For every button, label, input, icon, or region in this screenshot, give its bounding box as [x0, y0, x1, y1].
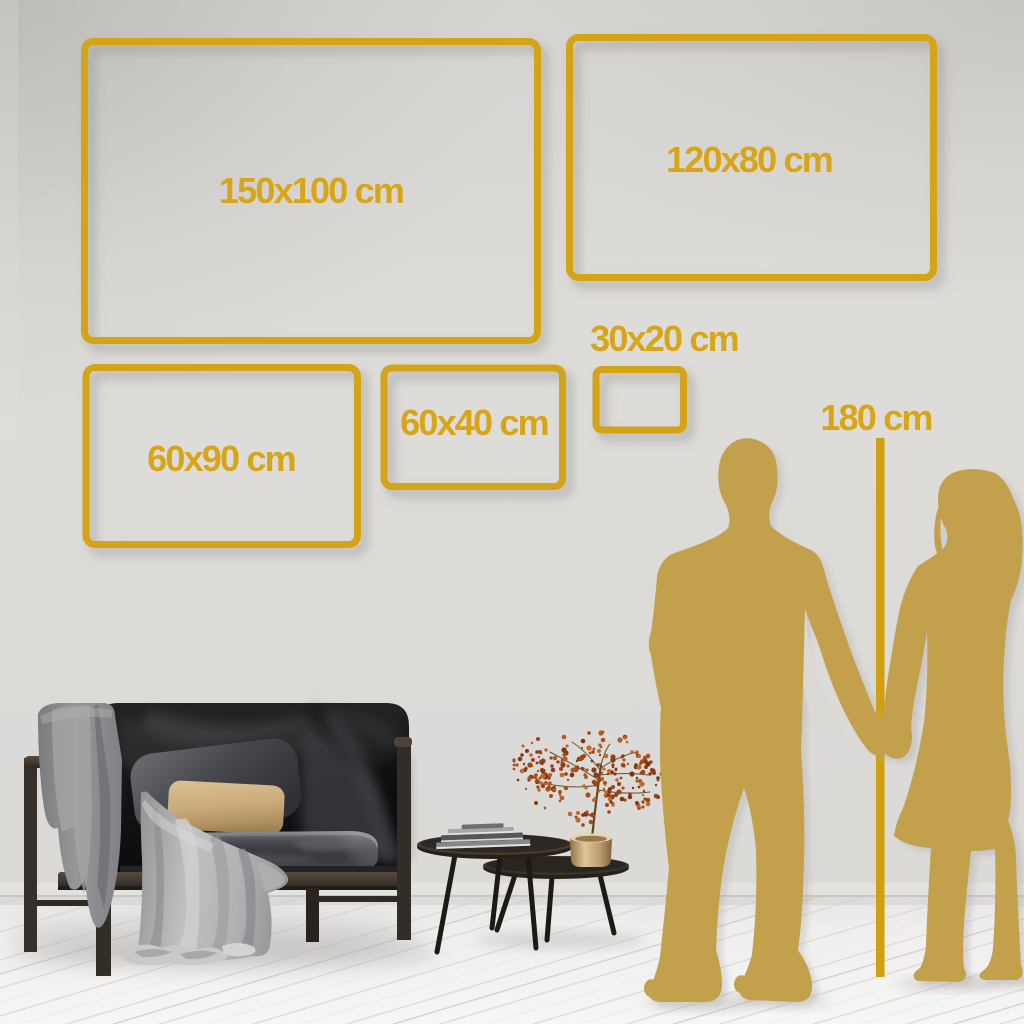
svg-text:60x90 cm: 60x90 cm: [147, 438, 295, 479]
svg-text:30x20 cm: 30x20 cm: [590, 318, 738, 359]
svg-text:150x100 cm: 150x100 cm: [219, 170, 403, 211]
svg-text:120x80 cm: 120x80 cm: [666, 139, 832, 180]
svg-text:60x40 cm: 60x40 cm: [400, 402, 548, 443]
svg-text:180 cm: 180 cm: [820, 397, 931, 438]
